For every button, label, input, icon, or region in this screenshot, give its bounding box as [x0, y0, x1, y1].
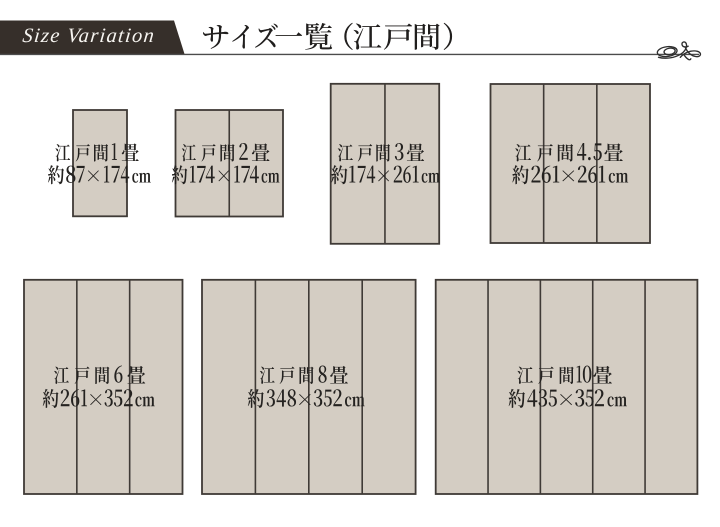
svg-text:Size Variation: Size Variation: [21, 25, 156, 47]
